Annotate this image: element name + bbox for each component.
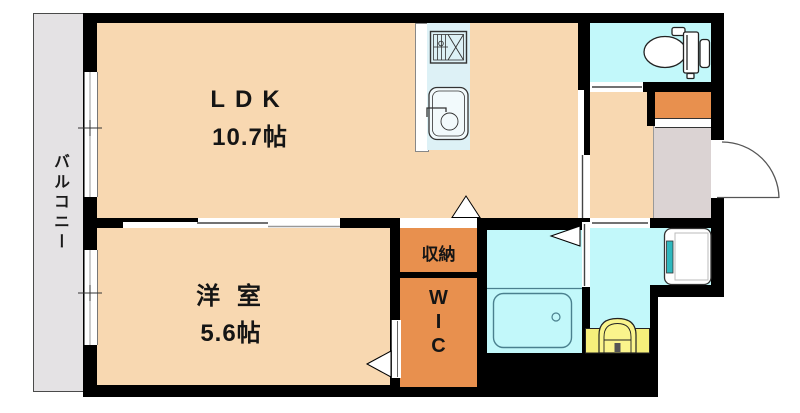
wall-hall-shoebox — [647, 82, 655, 126]
washroom-machine-area — [650, 228, 717, 285]
ldk-size-label: 10.7帖 — [175, 117, 325, 152]
wall-bottom-east — [487, 353, 658, 397]
kitchen-counter — [427, 23, 470, 150]
ldk-label: LDK — [175, 86, 325, 114]
wic-letter-i: I — [436, 311, 442, 334]
ldk-window — [84, 72, 98, 197]
entrance — [653, 126, 712, 218]
balcony-label: バルコニー — [47, 153, 71, 253]
wall-wic-bottom — [400, 387, 487, 397]
hallway — [590, 90, 653, 218]
wall-step — [650, 285, 723, 297]
wall-top — [83, 13, 723, 23]
wall-storage-right — [477, 218, 487, 397]
western-room-window — [84, 250, 98, 345]
western-room-size-label: 5.6帖 — [156, 313, 306, 348]
wic-letter-c: C — [431, 335, 445, 358]
toilet-door-opening — [590, 82, 643, 92]
sliding-door-opening — [198, 218, 340, 228]
wall-bath-wash-divider — [582, 287, 590, 355]
ldk-room — [97, 23, 578, 218]
entrance-door-opening — [711, 140, 724, 198]
hall-sliding-door-opening — [578, 155, 590, 218]
wall-ldk-hall — [578, 13, 590, 90]
sliding-door-pocket — [123, 222, 198, 228]
wall-ldk-west-a — [83, 218, 123, 228]
shoe-cabinet — [655, 92, 711, 118]
storage-door-opening — [400, 218, 477, 228]
washroom — [585, 224, 650, 353]
wall-bottom-west — [83, 385, 400, 397]
wic-label: W I C — [400, 287, 477, 387]
entrance-door-icon — [717, 142, 779, 198]
storage-label: 収納 — [400, 240, 477, 265]
wic-letter-w: W — [429, 287, 448, 310]
balcony-area: バルコニー — [33, 13, 85, 392]
floor-plan: バルコニー — [0, 0, 800, 413]
western-room-label: 洋 室 — [156, 276, 306, 311]
bathroom-door-opening — [582, 222, 590, 287]
wall-storage-wic-divider — [400, 272, 477, 278]
wall-bathroom-top — [487, 218, 582, 230]
washroom-door-opening — [590, 218, 650, 228]
shoe-cabinet-counter — [655, 118, 711, 128]
bathroom — [487, 230, 582, 355]
wall-right-lower — [650, 297, 658, 355]
wall-ldk-hall-thin — [584, 90, 590, 155]
toilet-room — [590, 23, 711, 82]
